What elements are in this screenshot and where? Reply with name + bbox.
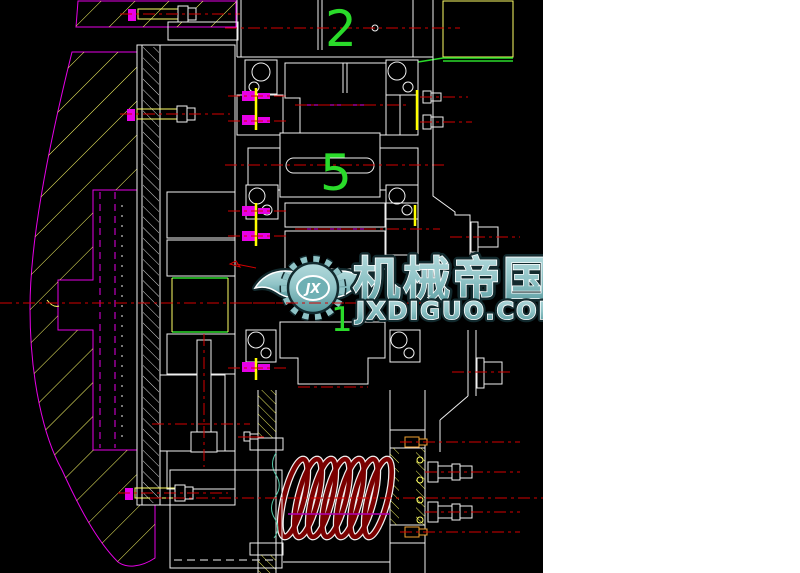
part-label-2: 2 [325,0,357,58]
ball-bearing [246,330,276,362]
cad-drawing: JX 机械帝国 机械帝国 JXDIGUO.COM JXDIGUO.COM 2 5… [0,0,800,573]
part-label-5: 5 [320,144,352,202]
ball-bearing [386,60,418,95]
logo-monogram: JX [303,282,322,297]
ball-bearing [245,60,277,94]
ball-bearing [390,330,420,362]
flange-plate [137,22,250,505]
watermark-url: JXDIGUO.COM [354,297,564,325]
green-outlined-block [172,278,228,332]
ball-bearing [386,185,418,219]
part-label-1: 1 [331,300,353,340]
